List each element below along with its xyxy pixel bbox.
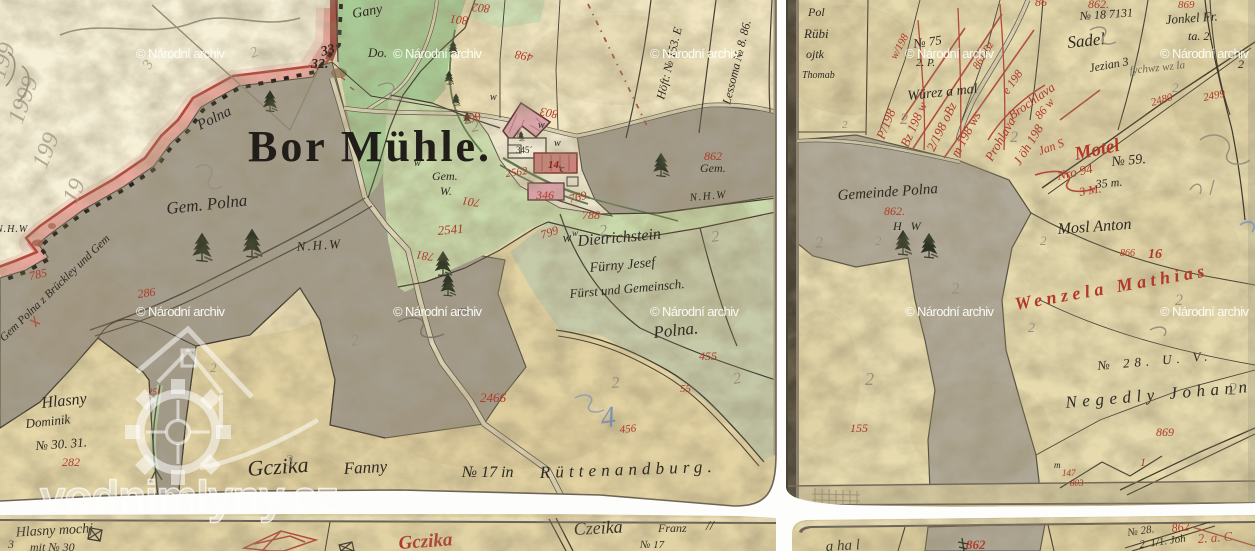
svg-text:16: 16 [1148,247,1162,262]
svg-text:© Národní archiv: © Národní archiv [393,304,483,319]
svg-text:862.: 862. [884,204,905,218]
svg-text:ta. 2.: ta. 2. [1188,29,1212,43]
svg-text:1: 1 [1140,455,1146,469]
svg-text:155: 155 [850,421,868,435]
svg-text:35 m.: 35 m. [1094,175,1123,191]
svg-text:3: 3 [284,452,294,470]
svg-text:2: 2 [900,111,908,128]
svg-text:286: 286 [136,285,156,301]
svg-text:147: 147 [1062,468,1076,478]
svg-text:801: 801 [449,12,468,28]
svg-text:w: w [572,228,578,238]
svg-text:w: w [414,158,421,169]
svg-text:2: 2 [1040,233,1047,248]
svg-text:© Národní archiv: © Národní archiv [1160,304,1250,319]
svg-text:Rübi: Rübi [803,26,829,41]
svg-text:© Národní archiv: © Národní archiv [136,46,226,61]
svg-text:Thomab: Thomab [802,70,835,81]
svg-text:№ 17 in: № 17 in [461,464,514,481]
svg-text:w: w [538,120,545,131]
svg-text:c: c [560,164,565,175]
svg-text:2: 2 [1010,129,1018,146]
svg-text:869: 869 [1178,0,1195,11]
svg-text:№ 59.: № 59. [1110,152,1146,170]
svg-text:2: 2 [865,369,874,389]
svg-text:2541: 2541 [437,221,464,238]
svg-text:w: w [490,92,497,103]
svg-text:m: m [1054,460,1061,470]
svg-text:© Národní archiv: © Národní archiv [393,46,483,61]
svg-text:2466: 2466 [480,390,507,405]
svg-text:w: w [562,229,572,245]
svg-text:802: 802 [471,0,490,16]
svg-text:N.H.W: N.H.W [0,224,29,235]
svg-text:345´: 345´ [516,145,533,155]
svg-text:2: 2 [875,233,882,248]
svg-text:© Národní archiv: © Národní archiv [650,46,740,61]
svg-text:86: 86 [1035,0,1047,9]
svg-text:2: 2 [1172,80,1179,95]
svg-text:456: 456 [619,423,637,436]
svg-text:869: 869 [1156,425,1174,439]
svg-text:© Národní archiv: © Národní archiv [1160,46,1250,61]
svg-text:32.: 32. [310,57,329,72]
svg-text:2: 2 [611,374,620,392]
svg-text:788: 788 [582,208,600,222]
svg-text:Pol: Pol [807,5,825,19]
svg-text:803: 803 [1070,478,1084,488]
svg-text:© Národní archiv: © Národní archiv [905,304,995,319]
svg-text:2: 2 [1028,321,1035,336]
svg-text:701: 701 [461,194,481,210]
svg-text:Gem.: Gem. [432,169,458,183]
svg-text:866: 866 [1120,248,1135,259]
svg-text:vodnimlyny.cz: vodnimlyny.cz [40,471,340,523]
svg-text:© Národní archiv: © Národní archiv [136,304,226,319]
svg-text:282: 282 [62,455,80,469]
svg-text:W.: W. [440,184,452,198]
svg-text:w: w [554,138,561,149]
svg-text:55: 55 [680,383,692,395]
svg-text:781: 781 [415,248,435,264]
svg-text:Sadel: Sadel [1066,29,1106,52]
svg-text:2: 2 [1228,379,1237,399]
svg-text:Gem.: Gem. [700,161,726,175]
svg-text:© Národní archiv: © Národní archiv [905,46,995,61]
svg-text:Fanny: Fanny [342,457,388,478]
svg-text:ojtk: ojtk [806,47,825,61]
svg-text:© Národní archiv: © Národní archiv [650,304,740,319]
svg-text:H W: H W [892,219,924,233]
svg-text:346: 346 [535,188,554,202]
svg-text:Do.: Do. [367,45,387,60]
svg-text:2: 2 [842,119,848,131]
svg-text:455: 455 [699,349,717,363]
svg-text:862: 862 [704,149,722,163]
